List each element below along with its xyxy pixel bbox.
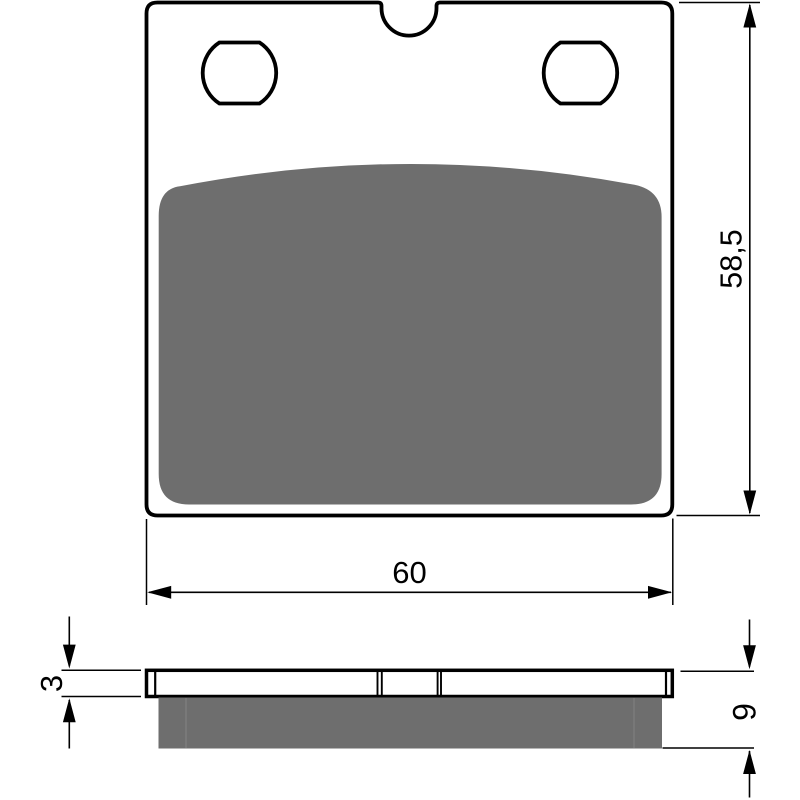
- svg-text:58,5: 58,5: [715, 229, 749, 288]
- svg-text:60: 60: [392, 555, 426, 590]
- svg-text:3: 3: [34, 675, 69, 692]
- svg-text:9: 9: [727, 703, 763, 721]
